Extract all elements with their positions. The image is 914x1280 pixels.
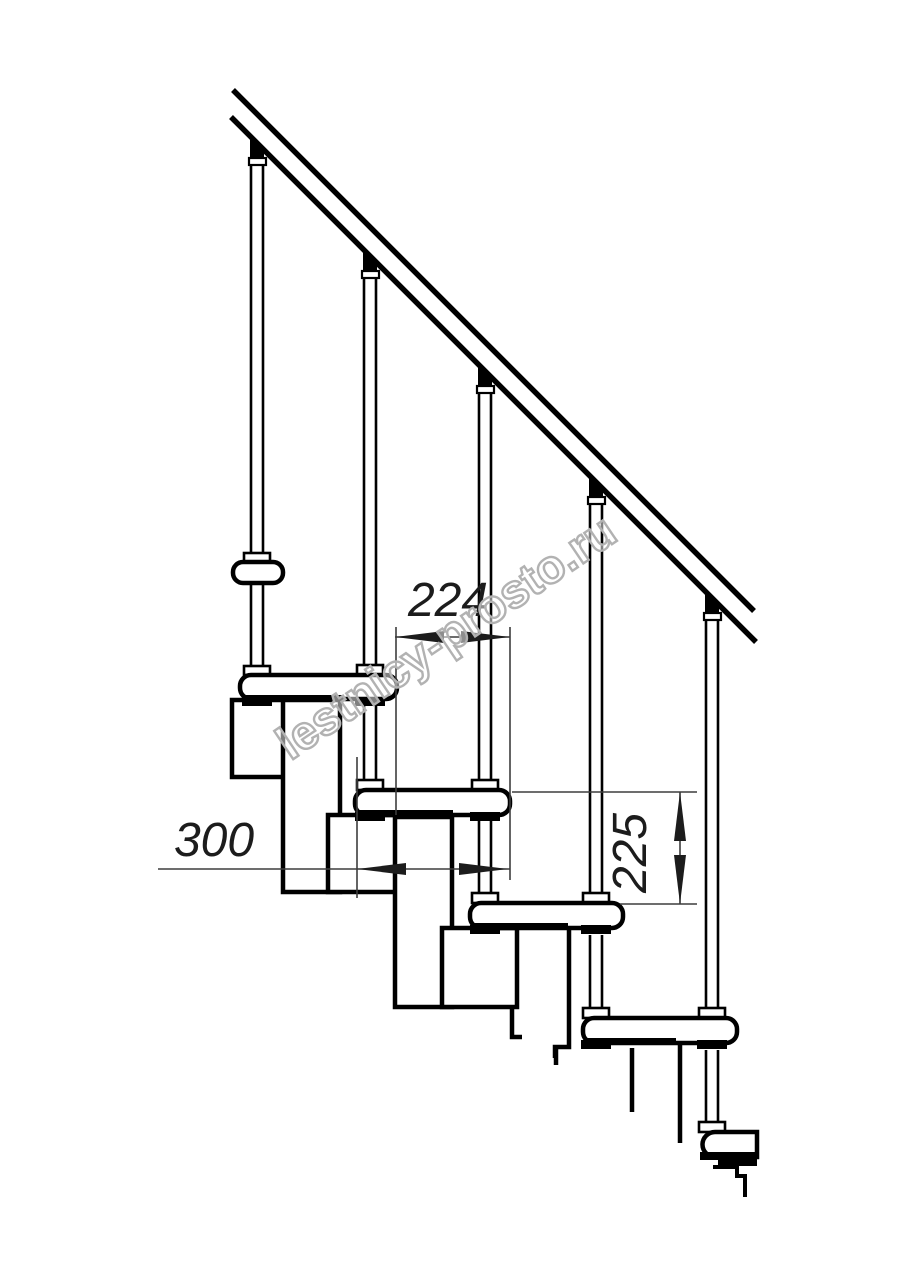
baluster-4-top-collar [588,497,605,504]
shadow-band-tread5-step [718,1160,757,1166]
watermark: lestnicy-prosto.ru [266,503,625,769]
connector-tube-step3-partial [555,930,569,1058]
bottom-crop-step-lines [713,1167,745,1197]
baluster-1 [244,138,270,675]
baluster-5-top-collar [704,613,721,620]
baluster-2-top-collar [362,271,379,278]
baluster-1-top-collar [249,158,266,165]
baluster-3-top-collar [477,386,494,393]
dim300-arrow-right [459,863,508,875]
clamp-tread2-rod2 [355,812,385,821]
dim225-arrow-down [674,855,686,904]
clamp-tread3-rod4 [581,925,611,934]
mount-box-step3-cut [512,1007,522,1037]
tread-0-nose [233,562,283,583]
staircase-drawing: 224 300 225 lestnicy-prosto.ru [0,0,914,1280]
clamp-tread3-rod3 [470,925,500,934]
dim225-label: 225 [604,813,657,894]
mount-box-step3 [442,928,517,1007]
clamp-tread2-rod3 [470,812,500,821]
handrail-top-line [233,90,754,611]
staircase-drawing-page: 224 300 225 lestnicy-prosto.ru [0,0,914,1280]
clamp-tread1-rod1 [242,697,272,706]
shadow-band-tread5 [700,1152,757,1160]
handrail [231,90,756,642]
support-modules [232,700,745,1197]
clamp-tread4-rod4 [581,1040,611,1049]
clamp-tread4-rod5 [697,1040,727,1049]
baluster-5 [699,593,725,1132]
mount-box-step2 [328,815,403,892]
dim300-label: 300 [174,814,254,867]
handrail-bottom-line [231,117,756,642]
dim225-arrow-up [674,792,686,841]
